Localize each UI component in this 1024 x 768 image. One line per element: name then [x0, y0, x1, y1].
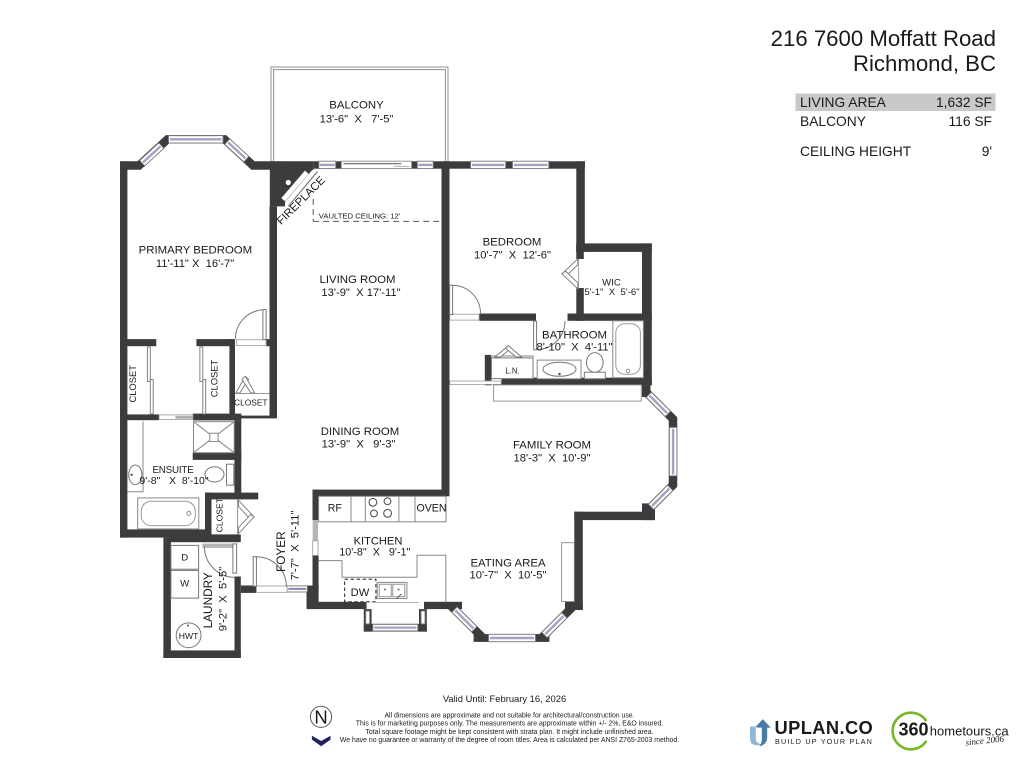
svg-text:D: D	[181, 552, 188, 563]
svg-text:This is for marketing purposes: This is for marketing purposes only. The…	[356, 721, 664, 728]
svg-text:360: 360	[899, 720, 929, 740]
svg-text:18'-3" X 10'-9": 18'-3" X 10'-9"	[514, 452, 591, 464]
svg-text:CLOSET: CLOSET	[234, 397, 268, 407]
svg-text:CEILING HEIGHT: CEILING HEIGHT	[800, 144, 912, 159]
svg-text:13'-6" X 7'-5": 13'-6" X 7'-5"	[320, 114, 394, 126]
svg-text:DINING ROOM: DINING ROOM	[321, 426, 399, 438]
svg-text:FAMILY ROOM: FAMILY ROOM	[513, 440, 591, 452]
svg-text:CLOSET: CLOSET	[214, 497, 224, 532]
svg-text:1,632 SF: 1,632 SF	[936, 95, 992, 110]
svg-text:UPLAN.CO: UPLAN.CO	[775, 717, 874, 738]
svg-text:116 SF: 116 SF	[949, 114, 992, 129]
svg-text:LAUNDRY: LAUNDRY	[201, 572, 215, 628]
svg-text:LIVING AREA: LIVING AREA	[800, 95, 887, 110]
svg-text:11'-11" X 16'-7": 11'-11" X 16'-7"	[156, 258, 234, 270]
svg-text:Valid Until: February 16, 2026: Valid Until: February 16, 2026	[443, 693, 566, 704]
svg-text:10'-8" X 9'-1": 10'-8" X 9'-1"	[339, 547, 410, 559]
svg-text:N: N	[314, 707, 327, 728]
svg-text:VAULTED CEILING: 12': VAULTED CEILING: 12'	[319, 211, 401, 220]
svg-text:DW: DW	[351, 587, 370, 599]
svg-text:We have no guarantee or warran: We have no guarantee or warranty of the …	[340, 737, 679, 744]
svg-text:LIVING ROOM: LIVING ROOM	[320, 274, 396, 286]
svg-text:OVEN: OVEN	[416, 503, 446, 515]
svg-text:CLOSET: CLOSET	[127, 365, 138, 403]
svg-text:216 7600 Moffatt Road: 216 7600 Moffatt Road	[771, 26, 996, 51]
svg-text:L.N.: L.N.	[505, 367, 519, 376]
svg-text:Richmond, BC: Richmond, BC	[853, 51, 996, 76]
svg-text:7'-7" X 5'-11": 7'-7" X 5'-11"	[289, 511, 301, 581]
svg-text:BALCONY: BALCONY	[800, 114, 866, 129]
svg-text:W: W	[180, 579, 190, 590]
svg-text:EATING AREA: EATING AREA	[470, 558, 546, 570]
svg-text:BALCONY: BALCONY	[329, 100, 384, 112]
svg-text:8'-10" X 4'-11": 8'-10" X 4'-11"	[536, 341, 612, 353]
svg-text:5'-1" X 5'-6": 5'-1" X 5'-6"	[584, 287, 639, 298]
svg-text:FOYER: FOYER	[274, 531, 288, 572]
svg-text:9': 9'	[982, 144, 992, 159]
svg-text:PRIMARY BEDROOM: PRIMARY BEDROOM	[139, 245, 253, 257]
svg-text:BATHROOM: BATHROOM	[542, 329, 607, 341]
svg-text:9'-2" X 5'-5": 9'-2" X 5'-5"	[217, 567, 229, 631]
svg-text:13'-9" X 17'-11": 13'-9" X 17'-11"	[321, 287, 400, 299]
svg-text:10'-7" X 12'-6": 10'-7" X 12'-6"	[474, 250, 551, 262]
svg-text:All dimensions are approximate: All dimensions are approximate and not s…	[384, 713, 634, 720]
svg-text:9'-8" X 8'-10": 9'-8" X 8'-10"	[139, 475, 209, 487]
svg-text:Total square footage might be: Total square footage might be kept consi…	[365, 729, 653, 736]
svg-text:HWT: HWT	[179, 631, 199, 641]
svg-text:13'-9" X 9'-3": 13'-9" X 9'-3"	[322, 439, 396, 451]
svg-text:BEDROOM: BEDROOM	[483, 236, 542, 248]
svg-text:BUILD UP YOUR PLAN: BUILD UP YOUR PLAN	[775, 737, 873, 746]
svg-text:CLOSET: CLOSET	[209, 359, 220, 397]
svg-text:RF: RF	[328, 503, 343, 515]
svg-text:10'-7" X 10'-5": 10'-7" X 10'-5"	[470, 570, 547, 582]
